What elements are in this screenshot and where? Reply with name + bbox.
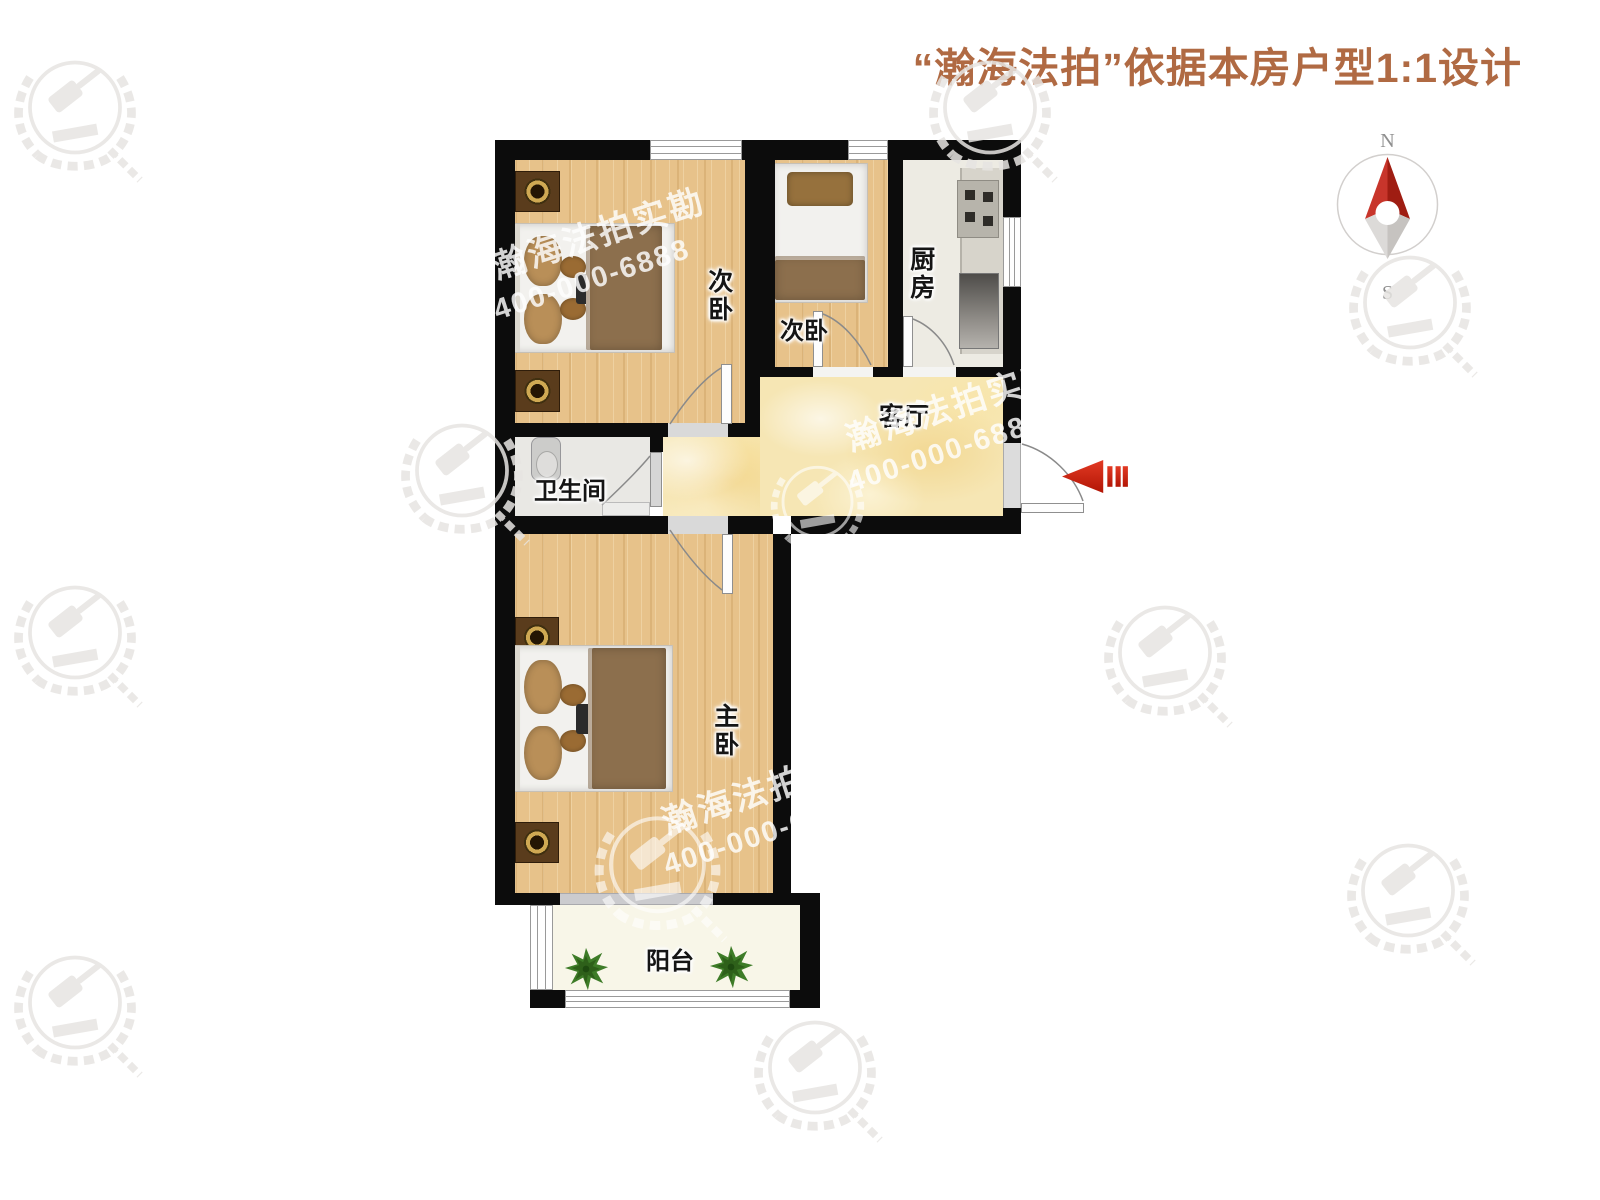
double-bed: [513, 223, 675, 353]
pillow: [524, 660, 562, 714]
blanket: [586, 226, 662, 350]
floor-plan: 次卧 次卧 厨房 客厅 卫生间 主卧 阳台 瀚海法拍实勘 400-000-688…: [480, 140, 1025, 1010]
entry-door-jamb: [1003, 443, 1021, 508]
living-room-floor: [760, 377, 1003, 516]
room-label-kitchen: 厨房: [906, 246, 935, 302]
window: [650, 140, 742, 160]
blanket: [775, 256, 865, 300]
door-threshold: [668, 516, 728, 534]
door-threshold: [668, 423, 728, 437]
compass-south-label: S: [1330, 282, 1445, 305]
floorplan-canvas: “瀚海法拍”依据本房户型1:1设计 N S: [0, 0, 1600, 1200]
door-threshold: [813, 367, 873, 377]
toilet: [531, 437, 561, 481]
room-label-bathroom: 卫生间: [534, 478, 606, 506]
room-label-master: 主卧: [710, 703, 739, 759]
nightstand: [515, 822, 559, 863]
toilet-bowl: [536, 451, 558, 478]
kitchen-appliance: [959, 273, 999, 349]
balcony-sliding-door: [560, 893, 713, 905]
pillow: [524, 726, 562, 780]
room-label-balcony: 阳台: [646, 948, 694, 976]
compass-needle-icon: [1330, 147, 1445, 262]
wall-segment: [1003, 140, 1021, 217]
wall-segment: [650, 437, 663, 452]
pillow: [524, 294, 562, 344]
stove-sink-unit: [957, 180, 999, 238]
potted-plant: [563, 946, 609, 992]
pillow: [787, 172, 853, 206]
balcony-front-window: [565, 990, 790, 1008]
background-watermark-logo: [740, 1000, 890, 1150]
background-watermark-logo: [0, 40, 150, 190]
wall-segment: [1003, 287, 1021, 443]
wall-segment: [495, 516, 668, 534]
wall-segment: [728, 423, 760, 437]
stove-burners: [965, 190, 975, 200]
window: [848, 140, 888, 160]
wall-segment: [790, 990, 820, 1008]
master-double-bed: [513, 645, 673, 792]
nightstand: [515, 370, 560, 412]
kitchen-window: [1003, 217, 1021, 287]
nightstand: [515, 171, 560, 212]
room-label-bedroom-top-left: 次卧: [704, 268, 733, 324]
single-bed: [772, 163, 868, 303]
background-watermark-logo: [0, 565, 150, 715]
wall-segment: [515, 893, 560, 905]
wall-segment: [530, 990, 565, 1008]
wall-segment: [791, 516, 1021, 534]
wall-segment: [760, 140, 775, 377]
hallway-floor: [663, 437, 760, 516]
balcony-side-window: [530, 905, 553, 990]
background-watermark-logo: [0, 935, 150, 1085]
potted-plant: [708, 944, 754, 990]
door-leaf: [903, 316, 913, 367]
background-watermark-logo: [1333, 823, 1483, 973]
door-threshold: [903, 367, 956, 377]
room-label-living: 客厅: [879, 403, 929, 432]
door-threshold: [602, 502, 650, 516]
door-leaf: [650, 452, 662, 507]
pillow: [524, 236, 562, 286]
wall-segment: [888, 140, 903, 377]
wall-segment: [773, 534, 791, 905]
background-watermark-logo: [1090, 585, 1240, 735]
page-title: “瀚海法拍”依据本房户型1:1设计: [913, 34, 1522, 94]
cushion: [560, 684, 586, 706]
wall-segment: [745, 140, 760, 437]
entry-arrow-icon: [1062, 459, 1130, 494]
door-leaf: [721, 364, 732, 424]
wall-segment: [713, 893, 820, 905]
door-leaf: [722, 534, 733, 594]
wall-segment: [515, 423, 668, 437]
blanket: [588, 648, 666, 789]
wall-segment: [775, 367, 813, 377]
wall-segment: [728, 516, 773, 534]
entry-door-leaf: [1021, 503, 1084, 513]
room-label-bedroom-top-mid: 次卧: [780, 318, 828, 346]
compass: N S: [1330, 130, 1445, 308]
